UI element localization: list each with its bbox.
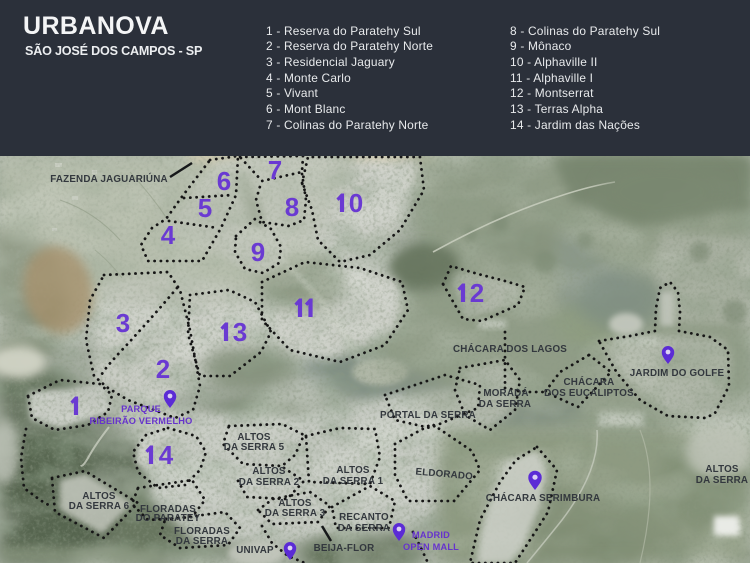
svg-text:ALTOS: ALTOS [252, 466, 286, 477]
svg-text:DA SERRA 1: DA SERRA 1 [323, 476, 384, 487]
svg-text:4: 4 [159, 440, 174, 470]
svg-text:DA SERRA 3: DA SERRA 3 [265, 508, 326, 519]
svg-text:DA SERRA: DA SERRA [479, 399, 531, 410]
svg-text:DA SERRA: DA SERRA [176, 536, 228, 547]
svg-text:DA SERRA 6: DA SERRA 6 [69, 501, 130, 512]
svg-text:OPEN MALL: OPEN MALL [403, 542, 459, 552]
svg-text:CHÁCARA: CHÁCARA [564, 376, 615, 388]
svg-text:DA SERRA: DA SERRA [696, 475, 748, 486]
svg-text:CHÁCARA SERIMBURA: CHÁCARA SERIMBURA [486, 492, 601, 504]
svg-text:DA SERRA 2: DA SERRA 2 [239, 477, 300, 488]
svg-text:2: 2 [156, 354, 170, 384]
svg-text:DO PARATEY: DO PARATEY [136, 513, 201, 524]
svg-text:3: 3 [116, 308, 130, 338]
svg-text:ALTOS: ALTOS [336, 465, 370, 476]
svg-text:4: 4 [161, 220, 176, 250]
svg-text:UNIVAP: UNIVAP [236, 545, 274, 556]
svg-text:BEIJA-FLOR: BEIJA-FLOR [314, 543, 375, 554]
svg-text:PORTAL DA SERRA: PORTAL DA SERRA [380, 410, 476, 421]
svg-text:DOS EUCALIPTOS: DOS EUCALIPTOS [544, 388, 634, 399]
svg-text:0: 0 [349, 188, 363, 218]
svg-text:FAZENDA JAGUARIÚNA: FAZENDA JAGUARIÚNA [50, 173, 168, 185]
svg-text:ALTOS: ALTOS [705, 464, 739, 475]
svg-text:RIBEIRÃO VERMELHO: RIBEIRÃO VERMELHO [90, 416, 193, 426]
svg-text:DA SERRA 5: DA SERRA 5 [224, 442, 285, 453]
svg-text:DA SERRA: DA SERRA [338, 523, 390, 534]
svg-text:JARDIM DO GOLFE: JARDIM DO GOLFE [630, 368, 725, 379]
svg-text:CHÁCARA DOS LAGOS: CHÁCARA DOS LAGOS [453, 343, 567, 355]
svg-text:7: 7 [268, 156, 282, 185]
svg-text:PARQUE: PARQUE [121, 404, 161, 414]
svg-text:3: 3 [233, 317, 247, 347]
svg-text:6: 6 [217, 166, 231, 196]
svg-text:RECANTO: RECANTO [339, 512, 389, 523]
svg-text:9: 9 [251, 237, 265, 267]
svg-text:2: 2 [470, 278, 484, 308]
svg-text:MADRID: MADRID [412, 530, 450, 540]
svg-text:5: 5 [198, 193, 212, 223]
svg-text:8: 8 [285, 192, 299, 222]
svg-text:MORADÁ: MORADÁ [483, 387, 528, 399]
